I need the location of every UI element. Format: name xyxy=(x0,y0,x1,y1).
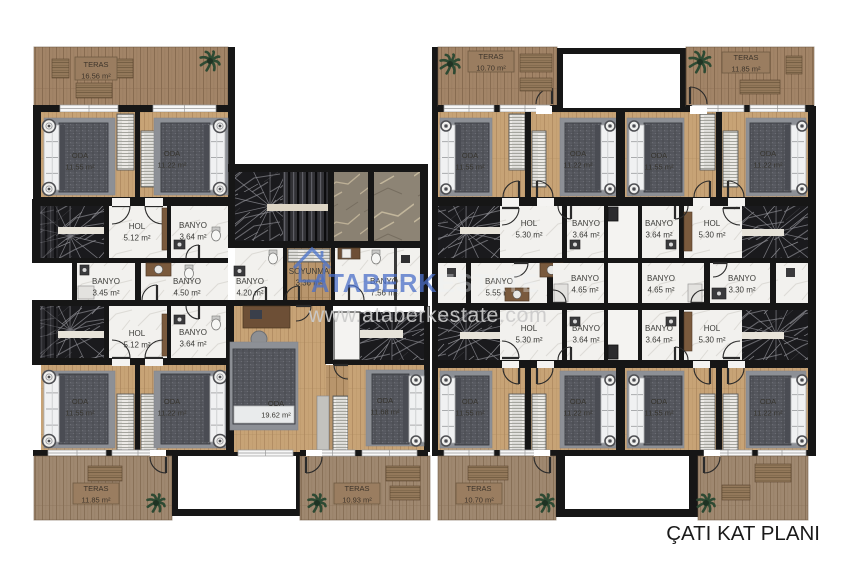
svg-text:ODA: ODA xyxy=(760,149,776,158)
svg-text:ÇATI KAT PLANI: ÇATI KAT PLANI xyxy=(666,522,820,545)
svg-text:ODA: ODA xyxy=(164,397,180,406)
svg-text:ODA: ODA xyxy=(72,151,88,160)
svg-text:11.22 m²: 11.22 m² xyxy=(157,161,187,170)
svg-text:11.55 m²: 11.55 m² xyxy=(644,409,674,418)
svg-text:3.64 m²: 3.64 m² xyxy=(179,233,206,242)
svg-text:4.50 m²: 4.50 m² xyxy=(173,289,200,298)
svg-text:11.85 m²: 11.85 m² xyxy=(731,65,761,74)
svg-text:11.55 m²: 11.55 m² xyxy=(65,163,95,172)
svg-text:BANYO: BANYO xyxy=(728,274,756,283)
svg-text:3.64 m²: 3.64 m² xyxy=(572,231,599,240)
svg-text:11.85 m²: 11.85 m² xyxy=(81,496,111,505)
svg-text:3.30 m²: 3.30 m² xyxy=(728,286,755,295)
svg-text:11.22 m²: 11.22 m² xyxy=(563,161,593,170)
svg-text:19.62 m²: 19.62 m² xyxy=(261,411,291,420)
svg-text:ESTATE: ESTATE xyxy=(438,270,540,298)
svg-text:5.30 m²: 5.30 m² xyxy=(698,336,725,345)
svg-text:11.68 m²: 11.68 m² xyxy=(370,408,400,417)
svg-text:HOL: HOL xyxy=(521,219,538,228)
svg-text:ODA: ODA xyxy=(651,151,667,160)
svg-text:10.93 m²: 10.93 m² xyxy=(342,496,372,505)
svg-text:10.70 m²: 10.70 m² xyxy=(476,64,506,73)
svg-text:5.30 m²: 5.30 m² xyxy=(515,336,542,345)
svg-text:3.64 m²: 3.64 m² xyxy=(645,231,672,240)
svg-text:11.22 m²: 11.22 m² xyxy=(753,409,783,418)
svg-text:ODA: ODA xyxy=(268,399,284,408)
svg-text:ODA: ODA xyxy=(377,396,393,405)
svg-text:3.64 m²: 3.64 m² xyxy=(645,336,672,345)
svg-text:HOL: HOL xyxy=(129,329,146,338)
svg-text:ODA: ODA xyxy=(462,151,478,160)
svg-text:5.30 m²: 5.30 m² xyxy=(515,231,542,240)
svg-text:BANYO: BANYO xyxy=(236,277,264,286)
svg-text:11.55 m²: 11.55 m² xyxy=(65,409,95,418)
svg-text:BANYO: BANYO xyxy=(645,219,673,228)
svg-text:ATABERK: ATABERK xyxy=(311,270,437,298)
svg-text:5.12 m²: 5.12 m² xyxy=(123,234,150,243)
svg-text:TERAS: TERAS xyxy=(83,60,108,69)
svg-text:11.55 m²: 11.55 m² xyxy=(644,163,674,172)
svg-text:HOL: HOL xyxy=(704,219,721,228)
svg-text:11.55 m²: 11.55 m² xyxy=(455,163,485,172)
svg-text:ODA: ODA xyxy=(570,149,586,158)
svg-text:11.55 m²: 11.55 m² xyxy=(455,409,485,418)
svg-text:4.65 m²: 4.65 m² xyxy=(647,286,674,295)
svg-text:ODA: ODA xyxy=(760,397,776,406)
svg-text:BANYO: BANYO xyxy=(92,277,120,286)
svg-text:TERAS: TERAS xyxy=(466,484,491,493)
svg-text:BANYO: BANYO xyxy=(571,274,599,283)
svg-text:ODA: ODA xyxy=(462,397,478,406)
svg-text:11.22 m²: 11.22 m² xyxy=(753,161,783,170)
svg-text:BANYO: BANYO xyxy=(179,221,207,230)
svg-text:HOL: HOL xyxy=(704,324,721,333)
svg-text:TERAS: TERAS xyxy=(344,484,369,493)
svg-text:BANYO: BANYO xyxy=(572,219,600,228)
svg-text:16.56 m²: 16.56 m² xyxy=(81,72,111,81)
svg-text:ODA: ODA xyxy=(164,149,180,158)
svg-text:11.22 m²: 11.22 m² xyxy=(157,409,187,418)
svg-text:BANYO: BANYO xyxy=(179,328,207,337)
svg-text:TERAS: TERAS xyxy=(478,52,503,61)
svg-text:3.45 m²: 3.45 m² xyxy=(92,289,119,298)
svg-text:10.70 m²: 10.70 m² xyxy=(464,496,494,505)
svg-text:ODA: ODA xyxy=(72,397,88,406)
svg-text:3.64 m²: 3.64 m² xyxy=(179,340,206,349)
svg-text:www.ataberkestate.com: www.ataberkestate.com xyxy=(308,303,548,327)
svg-text:ODA: ODA xyxy=(570,397,586,406)
svg-text:TERAS: TERAS xyxy=(83,484,108,493)
svg-text:BANYO: BANYO xyxy=(173,277,201,286)
svg-text:TERAS: TERAS xyxy=(733,53,758,62)
svg-text:ODA: ODA xyxy=(651,397,667,406)
svg-text:BANYO: BANYO xyxy=(572,324,600,333)
svg-text:3.64 m²: 3.64 m² xyxy=(572,336,599,345)
svg-text:11.22 m²: 11.22 m² xyxy=(563,409,593,418)
svg-text:BANYO: BANYO xyxy=(647,274,675,283)
svg-text:4.20 m²: 4.20 m² xyxy=(236,289,263,298)
svg-text:HOL: HOL xyxy=(129,222,146,231)
svg-text:4.65 m²: 4.65 m² xyxy=(571,286,598,295)
svg-text:5.30 m²: 5.30 m² xyxy=(698,231,725,240)
svg-text:BANYO: BANYO xyxy=(645,324,673,333)
